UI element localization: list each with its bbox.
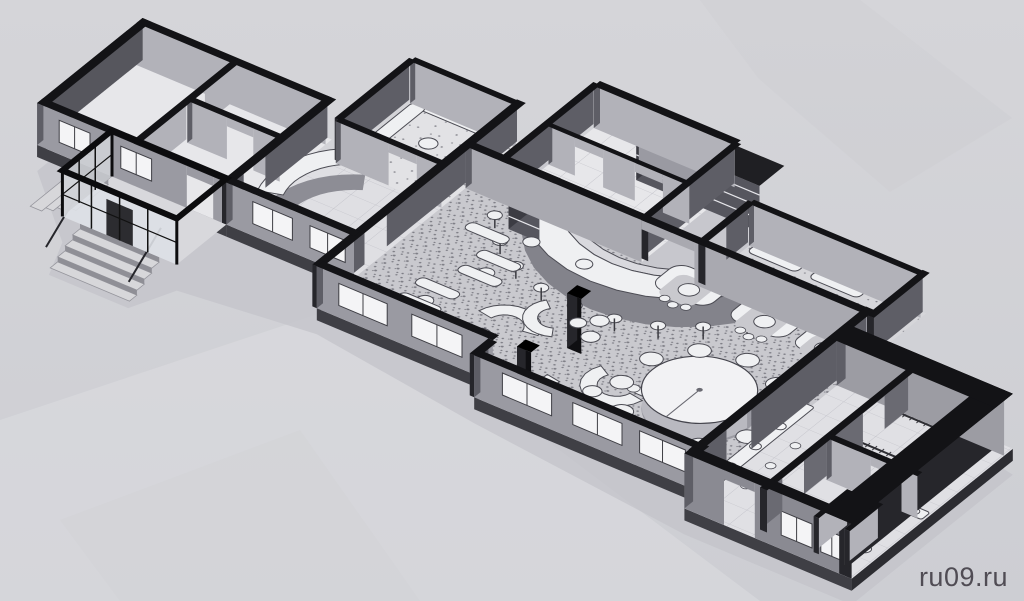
- watermark-text: ru09.ru: [919, 562, 1008, 593]
- photographed-plan-page: ru09.ru: [0, 0, 1024, 601]
- axonometric-floor-plan: [0, 0, 1024, 601]
